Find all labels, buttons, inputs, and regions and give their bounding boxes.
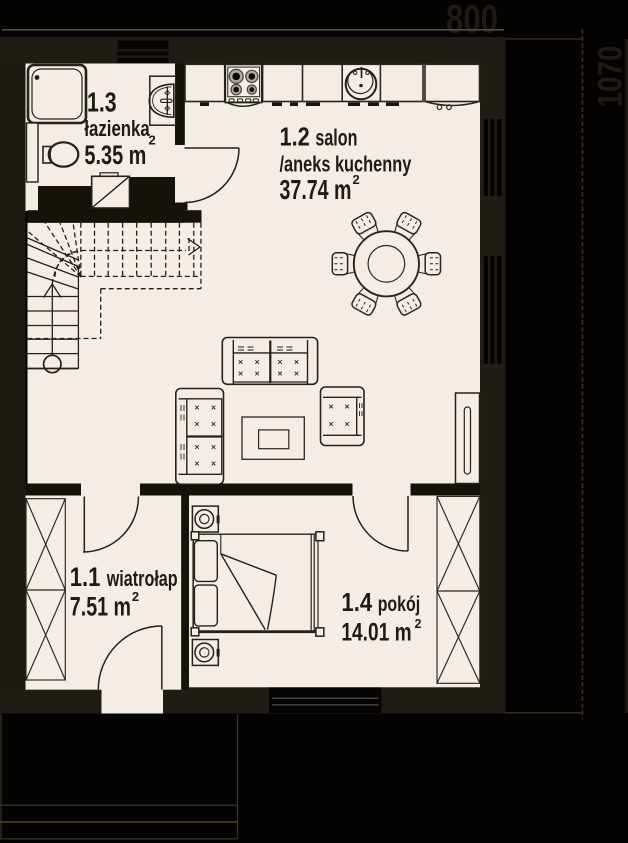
svg-text:/aneks kuchenny: /aneks kuchenny: [280, 152, 412, 177]
svg-text:1.3: 1.3: [87, 87, 117, 118]
svg-text:37.74 m: 37.74 m: [280, 174, 352, 205]
svg-text:łazienka: łazienka: [84, 116, 150, 141]
svg-text:2: 2: [149, 133, 156, 148]
svg-text:2: 2: [415, 617, 422, 631]
svg-text:1.2: 1.2: [280, 124, 310, 152]
svg-text:2: 2: [132, 589, 139, 604]
svg-text:salon: salon: [315, 125, 357, 151]
svg-text:1.1: 1.1: [70, 562, 101, 592]
svg-text:2: 2: [353, 172, 360, 187]
svg-text:7.51 m: 7.51 m: [70, 591, 131, 621]
svg-text:pokój: pokój: [378, 593, 421, 616]
svg-text:800: 800: [446, 0, 498, 42]
svg-text:1070: 1070: [592, 46, 628, 108]
svg-text:14.01 m: 14.01 m: [341, 619, 411, 647]
svg-text:5.35 m: 5.35 m: [84, 140, 146, 170]
svg-text:wiatrołap: wiatrołap: [106, 566, 178, 591]
svg-text:1.4: 1.4: [341, 589, 373, 617]
